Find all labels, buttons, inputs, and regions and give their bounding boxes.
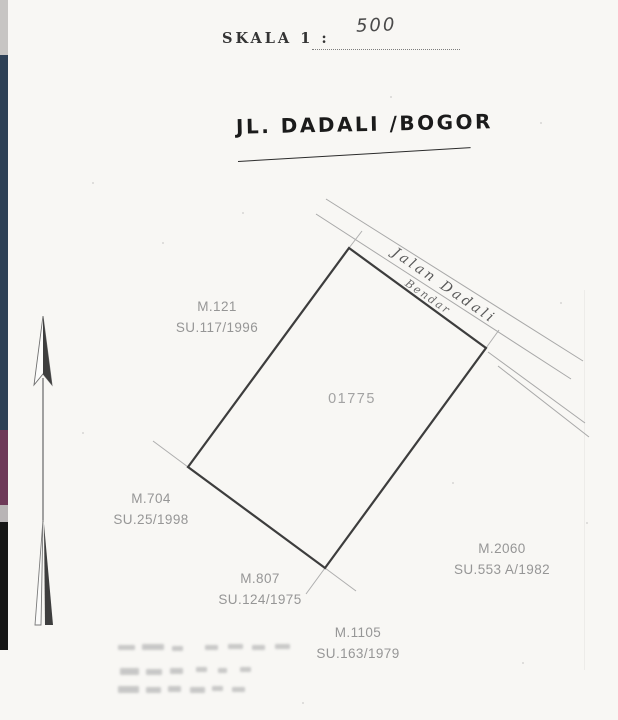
- north-arrow-icon: [18, 308, 70, 630]
- parcel-number: 01775: [328, 391, 376, 407]
- parcel-m-number: M.807: [218, 568, 301, 589]
- adjacent-parcel-label: M.121 SU.117/1996: [176, 296, 258, 338]
- parcel-su-number: SU.124/1975: [218, 589, 301, 610]
- survey-drawing: [0, 0, 618, 720]
- parcel-m-number: M.1105: [316, 622, 399, 643]
- adjacent-parcel-label: M.807 SU.124/1975: [218, 568, 301, 610]
- parcel-m-number: M.2060: [454, 538, 550, 559]
- parcel-su-number: SU.163/1979: [316, 643, 399, 664]
- parcel-su-number: SU.25/1998: [113, 509, 188, 530]
- parcel-su-number: SU.117/1996: [176, 317, 258, 338]
- parcel-su-number: SU.553 A/1982: [454, 559, 550, 580]
- parcel-m-number: M.121: [176, 296, 258, 317]
- parcel-m-number: M.704: [113, 488, 188, 509]
- adjacent-parcel-label: M.2060 SU.553 A/1982: [454, 538, 550, 580]
- scanned-survey-document: SKALA 1 : 500 JL. DADALI /BOGOR Jalan Da…: [0, 0, 618, 720]
- adjacent-parcel-label: M.704 SU.25/1998: [113, 488, 188, 530]
- adjacent-parcel-label: M.1105 SU.163/1979: [316, 622, 399, 664]
